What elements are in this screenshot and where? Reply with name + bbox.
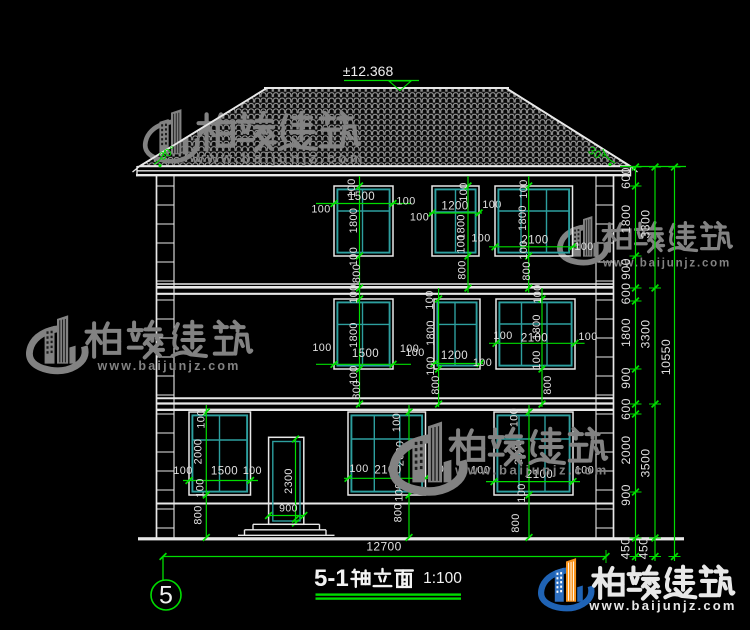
svg-text:www.baijunjz.com: www.baijunjz.com: [191, 151, 365, 167]
svg-text:±12.368: ±12.368: [343, 63, 394, 79]
svg-text:900: 900: [619, 258, 633, 280]
svg-text:1500: 1500: [211, 466, 238, 478]
svg-text:100: 100: [349, 463, 368, 475]
svg-text:800: 800: [351, 264, 363, 283]
svg-text:100: 100: [458, 182, 470, 201]
svg-text:100: 100: [346, 178, 358, 197]
svg-text:1200: 1200: [441, 350, 468, 362]
svg-text:5: 5: [159, 582, 173, 610]
svg-text:100: 100: [574, 241, 593, 253]
svg-text:800: 800: [457, 260, 469, 279]
svg-text:www.baijunjz.com: www.baijunjz.com: [454, 463, 609, 478]
svg-text:1800: 1800: [348, 322, 360, 348]
svg-text:1800: 1800: [517, 205, 529, 231]
svg-text:100: 100: [396, 196, 415, 208]
svg-text:3500: 3500: [639, 449, 653, 478]
svg-text:100: 100: [425, 356, 437, 375]
svg-text:100: 100: [348, 247, 360, 266]
svg-text:100: 100: [509, 408, 521, 427]
svg-text:900: 900: [619, 367, 633, 389]
svg-text:2300: 2300: [283, 468, 295, 494]
svg-text:800: 800: [521, 261, 533, 280]
svg-text:800: 800: [392, 503, 404, 522]
svg-text:1800: 1800: [619, 205, 633, 234]
svg-text:2000: 2000: [619, 436, 633, 465]
svg-text:800: 800: [351, 380, 363, 399]
svg-text:3300: 3300: [639, 320, 653, 349]
svg-text:100: 100: [456, 234, 468, 253]
svg-text:www.baijunjz.com: www.baijunjz.com: [588, 598, 736, 613]
svg-text:450: 450: [619, 538, 633, 560]
svg-text:100: 100: [173, 465, 192, 477]
svg-text:100: 100: [311, 204, 330, 216]
svg-text:100: 100: [391, 413, 403, 432]
svg-text:800: 800: [510, 513, 522, 532]
svg-text:12700: 12700: [366, 540, 401, 554]
svg-text:100: 100: [516, 483, 528, 502]
svg-text:800: 800: [430, 375, 442, 394]
svg-text:5-1: 5-1: [314, 565, 349, 592]
svg-text:2000: 2000: [192, 439, 204, 465]
svg-text:100: 100: [405, 347, 424, 359]
svg-text:1800: 1800: [348, 208, 360, 234]
svg-text:450: 450: [637, 538, 651, 560]
svg-text:800: 800: [542, 375, 554, 394]
svg-text:100: 100: [348, 284, 360, 303]
svg-text:1800: 1800: [425, 320, 437, 346]
svg-text:600: 600: [619, 283, 633, 305]
svg-text:100: 100: [312, 342, 331, 354]
svg-text:100: 100: [424, 290, 436, 309]
svg-text:3300: 3300: [639, 210, 653, 239]
svg-text:10550: 10550: [659, 339, 673, 375]
svg-text:100: 100: [578, 331, 597, 343]
svg-text:800: 800: [192, 505, 204, 524]
svg-text:1800: 1800: [619, 318, 633, 347]
svg-text:1:100: 1:100: [423, 570, 462, 587]
svg-text:900: 900: [619, 484, 633, 506]
svg-text:100: 100: [473, 357, 492, 369]
svg-text:100: 100: [243, 465, 262, 477]
svg-text:100: 100: [518, 179, 530, 198]
svg-text:www.baijunjz.com: www.baijunjz.com: [96, 359, 240, 373]
svg-text:1500: 1500: [352, 348, 379, 360]
svg-text:100: 100: [493, 330, 512, 342]
svg-text:100: 100: [196, 409, 208, 428]
svg-text:100: 100: [410, 212, 429, 224]
svg-text:100: 100: [532, 284, 544, 303]
svg-text:100: 100: [518, 240, 530, 259]
svg-text:100: 100: [531, 350, 543, 369]
svg-text:100: 100: [471, 233, 490, 245]
svg-text:600: 600: [619, 398, 633, 420]
svg-text:900: 900: [279, 503, 298, 515]
svg-text:1800: 1800: [531, 314, 543, 340]
svg-text:100: 100: [195, 478, 207, 497]
svg-text:600: 600: [619, 167, 633, 189]
